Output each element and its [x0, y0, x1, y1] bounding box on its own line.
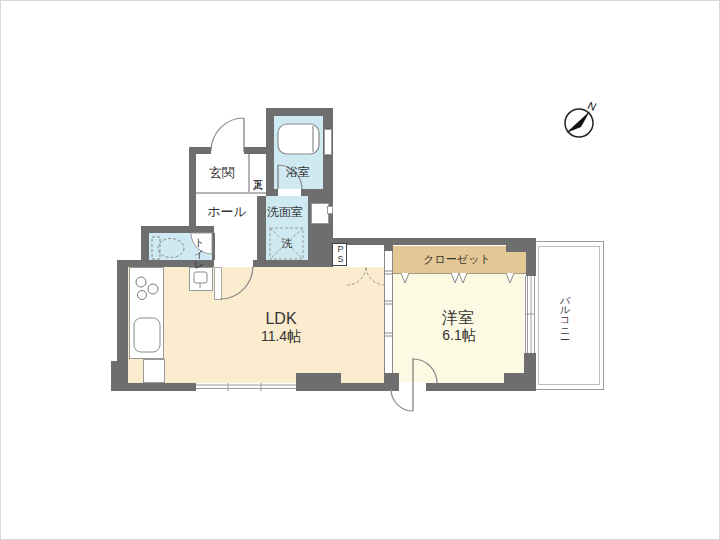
compass-icon: N	[565, 99, 597, 137]
kitchen-counter	[129, 267, 164, 359]
ps-label: PS	[335, 244, 345, 264]
ldk-floor	[128, 267, 384, 383]
balcony-label: バルコニー	[560, 288, 571, 333]
closet-label: クローゼット	[423, 253, 490, 265]
bath-label: 浴室	[286, 166, 310, 179]
compass-north-label: N	[587, 99, 598, 113]
ldk-size-label: 11.4帖	[261, 329, 301, 344]
ldk-label: LDK	[265, 310, 296, 328]
western-size-label: 6.1帖	[442, 328, 475, 343]
toilet-label: トイレ	[194, 231, 205, 265]
bath-window	[324, 129, 332, 155]
sliding-partition	[384, 251, 393, 373]
kitchen-end-cabinet	[143, 359, 165, 383]
western-door-gap	[399, 382, 426, 392]
western-window	[525, 276, 535, 353]
floor-plan-image: N 玄関 下足入 ホール 浴室 洗面室 洗 トイレ PS LDK 11.4帖 ク…	[0, 0, 720, 540]
shoebox-divider	[248, 154, 250, 192]
hall-label: ホール	[207, 205, 247, 219]
wall-cabinet	[189, 267, 213, 291]
entrance-door-arc	[211, 118, 244, 152]
washroom-label: 洗面室	[267, 206, 303, 219]
genkan-step-line	[196, 192, 266, 194]
ldk-window	[196, 383, 296, 391]
hall-door-leaf	[214, 267, 222, 300]
western-label: 洋室	[442, 309, 474, 327]
water-heater-valve	[327, 206, 333, 214]
genkan-label: 玄関	[209, 166, 235, 180]
storage-space	[347, 245, 384, 267]
washer-label: 洗	[282, 237, 293, 249]
